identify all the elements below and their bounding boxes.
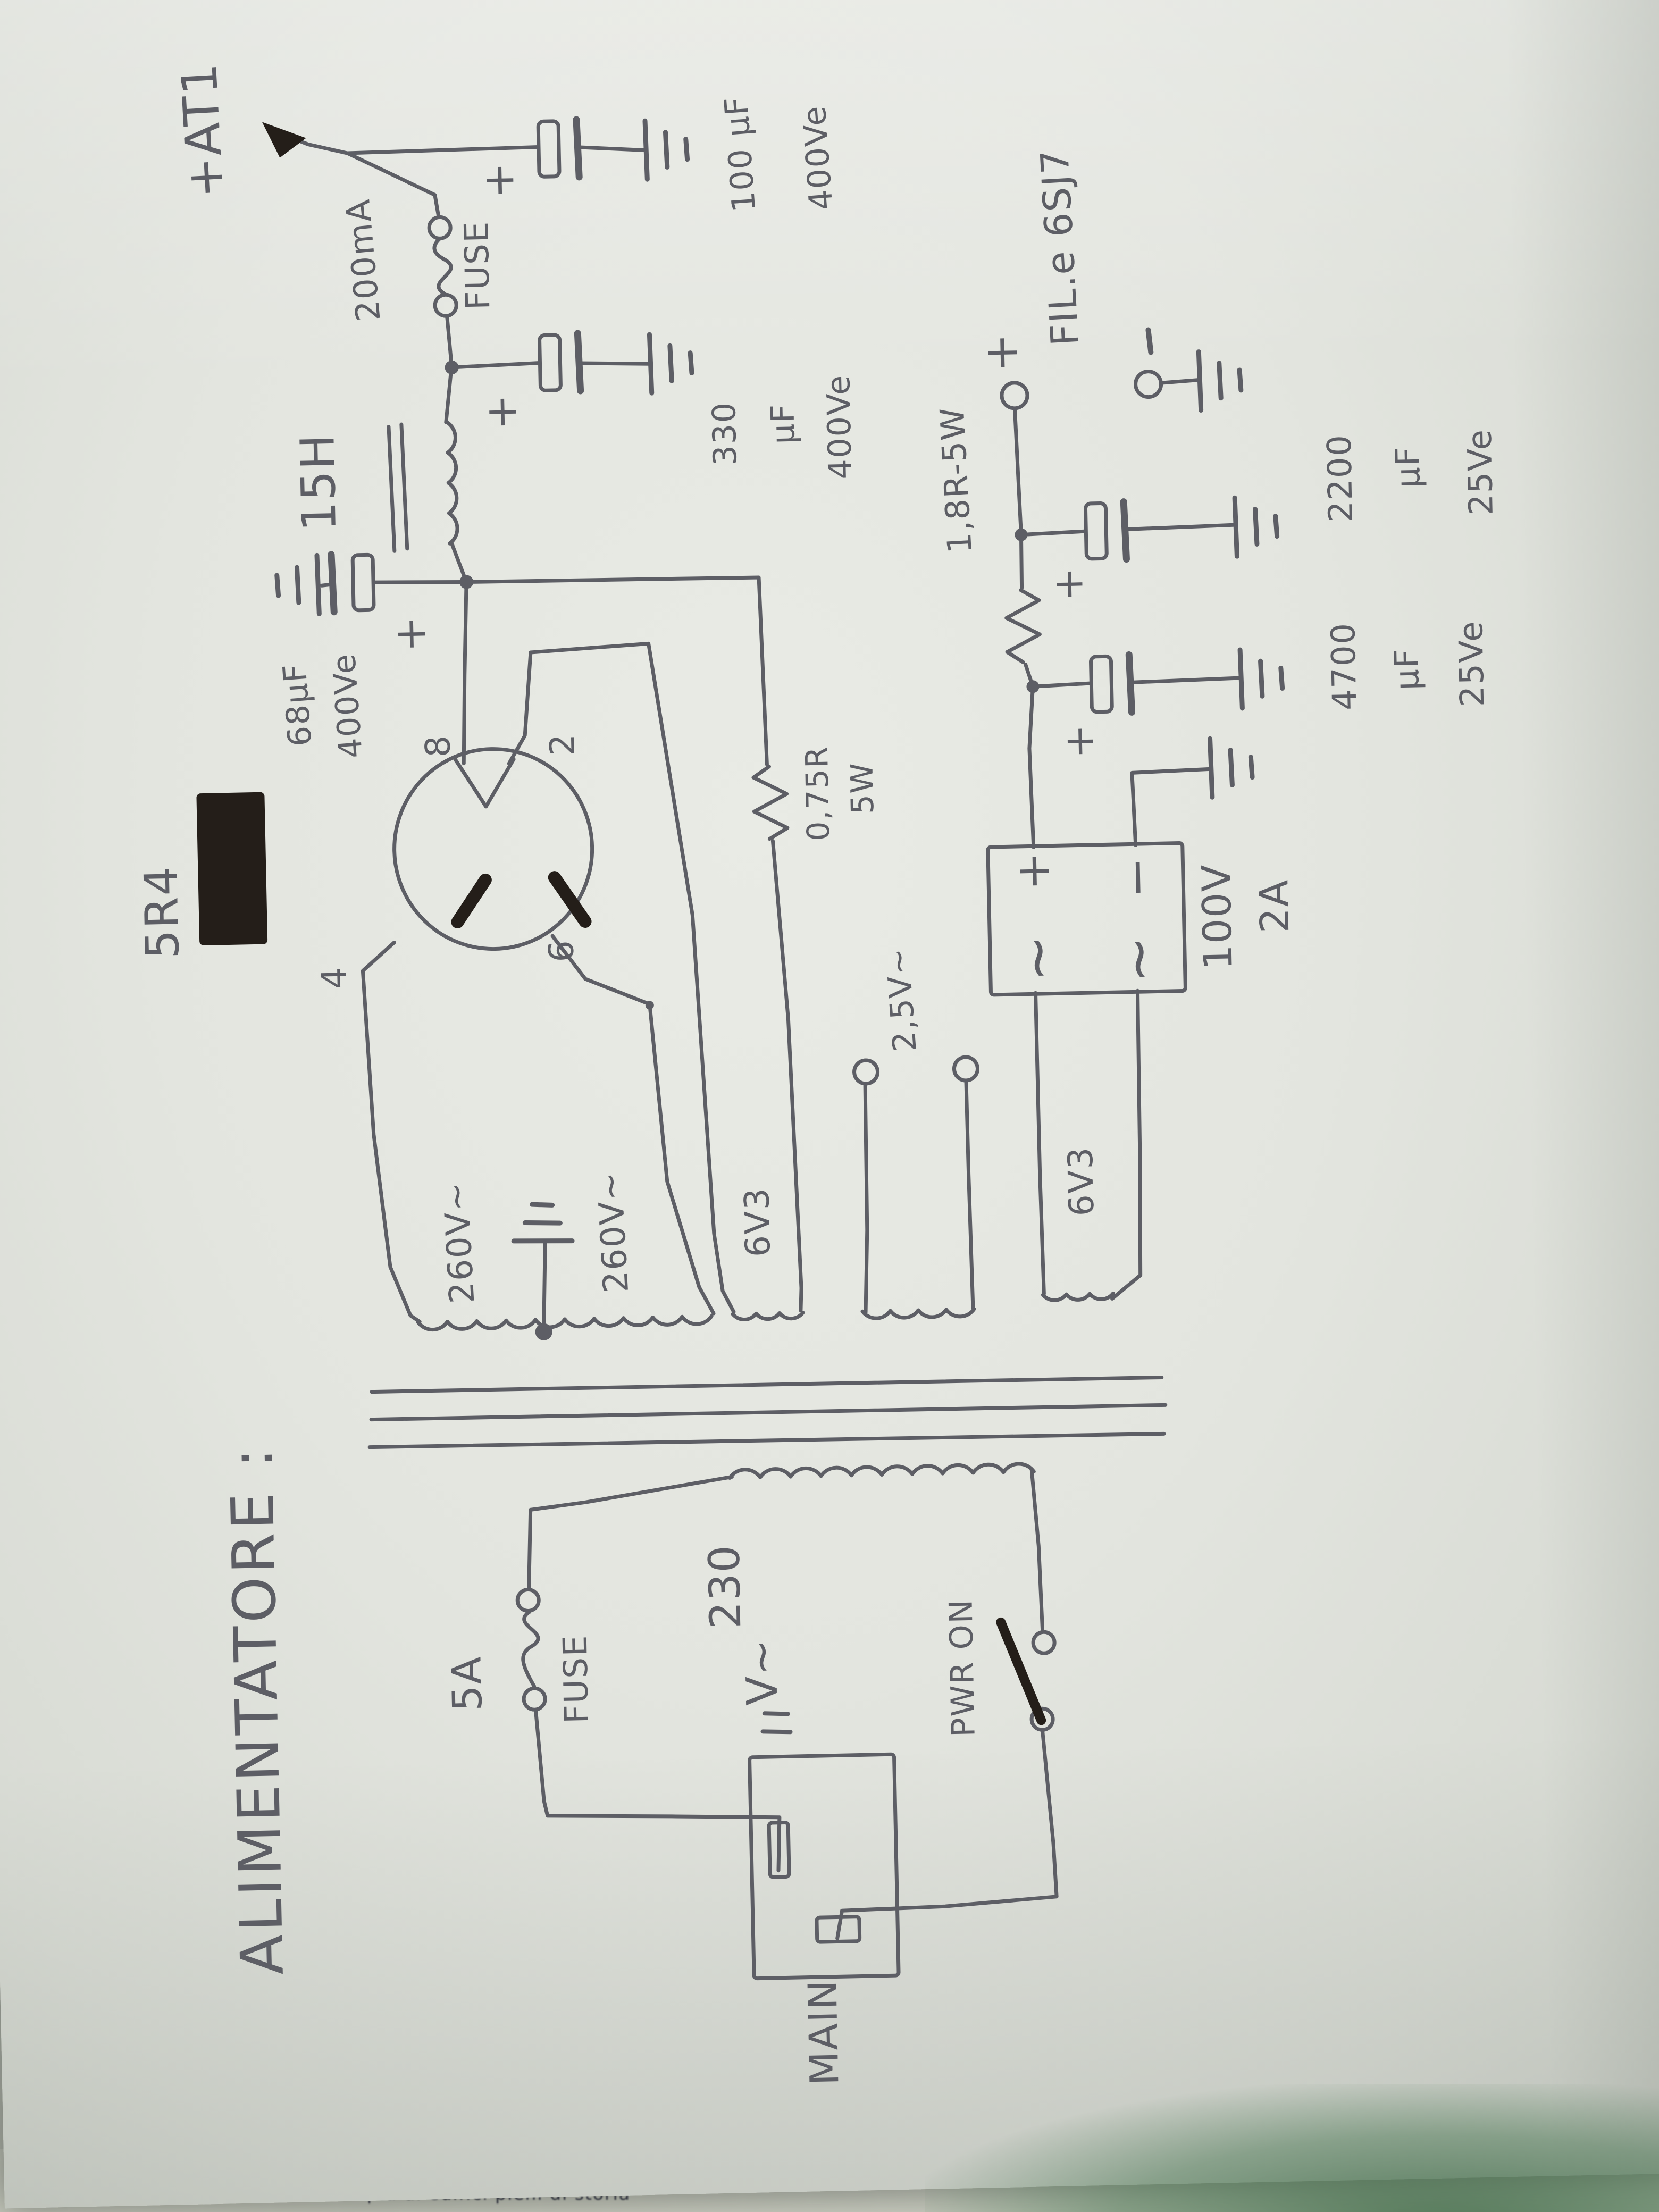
wire-330uf <box>452 363 540 367</box>
at1-arrowhead <box>262 121 306 158</box>
pin-4: 4 <box>315 966 355 990</box>
ground-bridge-minus <box>1210 738 1253 798</box>
hv-label-1: 260V~ <box>437 1180 483 1304</box>
wire-6v3b-a <box>1036 993 1044 1294</box>
cap-68uf <box>331 554 374 612</box>
bridge-plus: + <box>1007 850 1061 891</box>
pin-2: 2 <box>543 733 583 756</box>
wire-100uf-gnd <box>579 146 643 152</box>
fil-minus-sign <box>1148 330 1151 352</box>
fuse5a-rating: 5A <box>442 1655 491 1712</box>
wire-68uf <box>375 581 466 584</box>
cap4700-voltage: 25Ve <box>1451 620 1492 707</box>
bridge-ac2: ~ <box>1105 934 1171 984</box>
wire-choke-j2 <box>445 369 453 422</box>
cap68-value: 68μF <box>276 661 319 748</box>
cap100-voltage: 400Ve <box>795 104 840 211</box>
choke-core-1 <box>389 426 395 551</box>
schematic-rotated-container: ALIMENTATORE :5R48246+68μF400Ve15H+330μF… <box>0 0 1659 2206</box>
wire-fuse-plug <box>536 1706 781 1875</box>
cap330-plus: + <box>476 393 526 431</box>
fuse5a-element <box>522 1612 539 1687</box>
bridge-current: 2A <box>1251 878 1298 933</box>
wire-tap-gnd <box>542 1244 547 1332</box>
hv-winding <box>418 1316 711 1330</box>
choke-15h <box>447 422 458 543</box>
mains-plug <box>750 1754 899 1979</box>
2v5-label: 2,5V~ <box>879 946 924 1053</box>
ground-4700uf <box>1240 649 1283 708</box>
wire-4700uf-gnd <box>1131 678 1238 682</box>
6v3b-label: 6V3 <box>1061 1146 1102 1217</box>
wire-res-j3 <box>1020 535 1022 588</box>
2v5-winding <box>862 1309 974 1319</box>
res0r75-value: 0,75R <box>799 745 837 841</box>
terminal-2v5-b <box>954 1057 978 1081</box>
wire-primary-bottom <box>1032 1470 1042 1631</box>
wire-68uf-gnd <box>322 584 333 585</box>
wire-j3-term <box>1015 409 1021 535</box>
xfmr-core-3 <box>372 1375 1162 1394</box>
wire-2200uf-gnd <box>1126 525 1233 529</box>
wire-bridge-plus <box>1028 686 1036 847</box>
cap68-voltage: 400Ve <box>325 652 370 759</box>
ground-68uf <box>276 555 319 615</box>
fuse200-terminal-2 <box>429 217 451 239</box>
xfmr-core-1 <box>370 1430 1164 1450</box>
6v3a-winding <box>733 1313 803 1320</box>
6v3b-winding <box>1043 1293 1113 1300</box>
ground-100uf <box>645 120 688 180</box>
cap100-value: 100 μF <box>717 95 763 213</box>
wire-2v5-b <box>966 1082 973 1308</box>
wire-filminus-gnd <box>1162 380 1198 383</box>
ground-center-tap <box>513 1204 572 1242</box>
cap4700-plus: + <box>1055 723 1103 759</box>
tube-socket <box>392 747 594 951</box>
cap330-uf: μF <box>764 403 802 445</box>
res0r75-power: 5W <box>843 761 881 815</box>
choke-label: 15H <box>290 433 347 532</box>
photo-of-schematic: tecun ponosng? Anob nallPS mende, di una… <box>0 0 1659 2212</box>
wire-switch-plug <box>833 1731 1058 1939</box>
line-cap-mark-1 <box>763 1731 790 1732</box>
fuse200-element <box>434 238 452 294</box>
cap2200-voltage: 25Ve <box>1460 428 1500 515</box>
bridge-voltage: 100V <box>1194 863 1242 970</box>
fuse200-rating: 200mA <box>338 197 388 323</box>
cap2200-plus: + <box>1044 566 1092 602</box>
cap4700-value: 4700 <box>1323 622 1364 710</box>
cap2200-value: 2200 <box>1320 433 1360 522</box>
fil-plus-sign: + <box>975 332 1029 372</box>
primary-voltage: 230 <box>699 1544 750 1629</box>
wire-100uf <box>347 147 538 154</box>
ground-fil-minus <box>1199 351 1241 410</box>
wire-bridge-minus <box>1132 769 1211 845</box>
cap-100uf <box>538 120 579 178</box>
wire-330uf-gnd <box>580 362 649 365</box>
wire-j2-fuse <box>447 316 452 367</box>
switch-contact-1 <box>1033 1632 1055 1654</box>
wire-2v5-a <box>861 1085 870 1312</box>
wire-pin4 <box>362 942 420 1323</box>
cap330-voltage: 400Ve <box>820 374 859 480</box>
terminal-fil-plus <box>1001 382 1027 408</box>
mains-label: MAIN <box>800 1979 848 2085</box>
redaction-bar <box>196 792 267 946</box>
fuse5a-terminal-2 <box>524 1688 546 1710</box>
fuse5a-label: FUSE <box>556 1634 596 1724</box>
terminal-fil-minus <box>1135 371 1161 397</box>
cap330-value: 330 <box>706 401 744 466</box>
tube-label: 5R4 <box>135 865 190 959</box>
hv-label-2: 260V~ <box>590 1170 636 1294</box>
resistor-1r8 <box>1006 590 1041 663</box>
fil-label: FIL.e 6SJ7 <box>1032 147 1088 347</box>
wire-2200uf <box>1021 531 1085 535</box>
socket-notch <box>455 758 515 807</box>
ground-330uf <box>649 334 692 393</box>
choke-core-2 <box>401 424 407 549</box>
fuse5a-terminal-1 <box>517 1589 539 1611</box>
wire-6v3b-b <box>1105 991 1144 1298</box>
cap2200-uf: μF <box>1388 446 1428 489</box>
cap68-plus: + <box>385 615 435 652</box>
bridge-minus: − <box>1108 856 1166 899</box>
xfmr-core-2 <box>371 1403 1166 1421</box>
line-cap-mark-2 <box>765 1713 788 1714</box>
schematic-drawing: ALIMENTATORE :5R48246+68μF400Ve15H+330μF… <box>0 0 1659 2206</box>
resistor-0r75 <box>753 766 787 839</box>
wire-4700uf <box>1033 683 1091 686</box>
6v3a-label: 6V3 <box>738 1187 778 1258</box>
at1-label: +AT1 <box>171 61 235 199</box>
wire-pin8 <box>460 582 470 764</box>
pin-8: 8 <box>418 734 458 758</box>
schematic-paper: ALIMENTATORE :5R48246+68μF400Ve15H+330μF… <box>0 0 1659 2208</box>
anode-plate-1 <box>457 880 487 922</box>
cap-2200uf <box>1085 502 1126 560</box>
primary-winding <box>730 1463 1034 1478</box>
switch-label: PWR ON <box>942 1598 982 1738</box>
cap100-plus: + <box>474 161 524 199</box>
title: ALIMENTATORE : <box>217 1444 297 1975</box>
cap-330uf <box>539 333 580 392</box>
cap4700-uf: μF <box>1387 648 1427 691</box>
wire-j1-down <box>466 576 767 771</box>
res1r8-label: 1,8R-5W <box>933 406 979 555</box>
fuse200-label: FUSE <box>457 220 497 310</box>
primary-vac: V~ <box>736 1638 787 1706</box>
bridge-ac1: ~ <box>1004 933 1070 983</box>
wire-j1-choke <box>452 543 467 583</box>
fuse200-terminal-1 <box>435 295 457 316</box>
ground-2200uf <box>1235 497 1277 557</box>
cap-4700uf <box>1091 655 1132 713</box>
terminal-2v5-a <box>854 1060 878 1084</box>
